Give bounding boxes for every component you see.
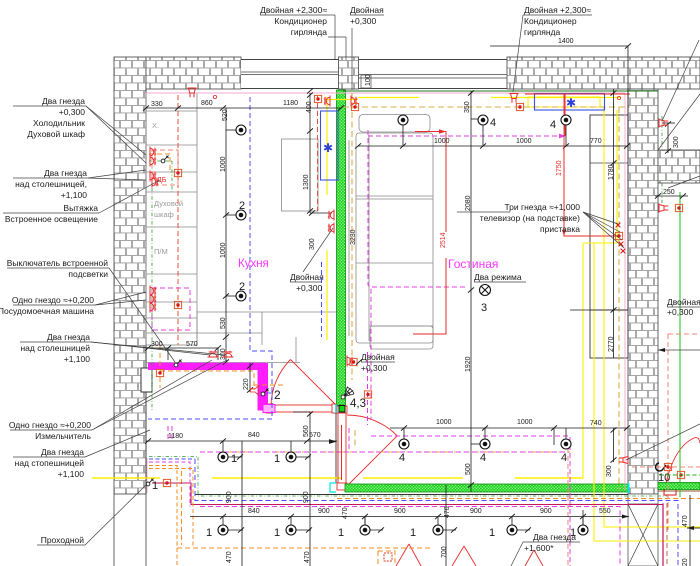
svg-text:500: 500 [465, 463, 472, 475]
svg-text:Кондиционер: Кондиционер [274, 16, 327, 26]
svg-text:560: 560 [303, 425, 310, 437]
svg-text:3230: 3230 [350, 229, 357, 245]
svg-text:770: 770 [590, 138, 602, 145]
svg-text:10: 10 [658, 472, 670, 484]
svg-text:300: 300 [309, 238, 316, 250]
svg-text:Двойная +2,300≈: Двойная +2,300≈ [260, 5, 327, 15]
svg-text:Двойная +2,300≈: Двойная +2,300≈ [524, 5, 591, 15]
svg-text:900: 900 [394, 508, 406, 515]
svg-text:220: 220 [243, 378, 250, 390]
svg-text:470: 470 [304, 551, 311, 563]
svg-text:330: 330 [151, 101, 163, 108]
svg-text:900: 900 [303, 491, 310, 503]
svg-text:550: 550 [599, 508, 611, 515]
svg-text:подсветки: подсветки [68, 269, 108, 279]
svg-text:над столешницей: над столешницей [20, 343, 90, 353]
svg-text:1000: 1000 [220, 156, 227, 172]
svg-text:Двойная: Двойная [361, 352, 395, 362]
svg-text:1400: 1400 [558, 38, 574, 45]
svg-text:1: 1 [206, 527, 212, 539]
svg-text:над стопешницей: над стопешницей [15, 458, 85, 468]
svg-text:над столешницей,: над столешницей, [15, 179, 87, 189]
svg-text:570: 570 [309, 432, 321, 439]
svg-text:Два гнезда: Два гнезда [42, 96, 85, 106]
svg-text:1180: 1180 [283, 100, 298, 107]
svg-text:Вытяжка: Вытяжка [63, 203, 98, 213]
svg-text:1: 1 [231, 453, 237, 465]
svg-text:Посудомоечная машина: Посудомоечная машина [0, 306, 94, 316]
svg-text:900: 900 [540, 508, 552, 515]
svg-text:300: 300 [606, 465, 613, 477]
svg-text:Два гнезда: Два гнезда [47, 332, 90, 342]
svg-text:Встроенное освещение: Встроенное освещение [5, 214, 98, 224]
svg-text:Двойная: Двойная [667, 297, 700, 307]
svg-text:шкаф: шкаф [154, 210, 174, 219]
svg-text:Гостиная: Гостиная [448, 257, 498, 271]
svg-text:Одно гнездо ≈+0,200: Одно гнездо ≈+0,200 [12, 295, 94, 305]
svg-text:350: 350 [464, 101, 471, 113]
svg-text:+1,600*: +1,600* [524, 543, 554, 553]
svg-text:Проходной: Проходной [41, 535, 85, 545]
svg-text:100: 100 [365, 74, 372, 86]
svg-text:1: 1 [274, 527, 280, 539]
svg-text:гирлянда: гирлянда [524, 27, 561, 37]
svg-text:1750: 1750 [556, 160, 563, 176]
svg-text:1: 1 [410, 527, 416, 539]
svg-text:Два гнезда: Два гнезда [41, 447, 84, 457]
svg-text:телевизор (на подставке): телевизор (на подставке) [480, 213, 580, 223]
svg-text:Три гнезда ≈+1,000: Три гнезда ≈+1,000 [504, 202, 580, 212]
svg-text:1: 1 [274, 453, 280, 465]
svg-text:530: 530 [220, 317, 227, 329]
svg-text:900: 900 [226, 491, 233, 503]
svg-text:3: 3 [481, 302, 487, 314]
svg-text:520: 520 [222, 109, 229, 121]
svg-text:+1,100: +1,100 [58, 469, 85, 479]
svg-text:гирлянда: гирлянда [291, 27, 328, 37]
svg-text:860: 860 [201, 100, 213, 107]
svg-text:1000: 1000 [220, 242, 227, 258]
svg-text:740: 740 [590, 420, 602, 427]
svg-text:1780: 1780 [608, 164, 615, 180]
svg-text:1000: 1000 [434, 138, 450, 145]
svg-text:Кондиционер: Кондиционер [524, 16, 577, 26]
svg-text:Двойная: Двойная [290, 272, 324, 282]
svg-text:Двойная: Двойная [350, 5, 384, 15]
svg-text:1300: 1300 [303, 174, 310, 190]
svg-text:2770: 2770 [608, 336, 615, 352]
svg-text:Измельчитель: Измельчитель [35, 431, 91, 441]
svg-text:720: 720 [682, 558, 689, 566]
svg-text:+0,300: +0,300 [296, 283, 323, 293]
svg-text:+0,300: +0,300 [667, 307, 694, 317]
svg-text:1: 1 [338, 527, 344, 539]
svg-text:2: 2 [274, 388, 281, 402]
svg-text:2080: 2080 [465, 195, 472, 211]
svg-text:1: 1 [489, 527, 495, 539]
svg-text:X.: X. [152, 121, 159, 130]
svg-text:4: 4 [490, 117, 496, 129]
svg-text:840: 840 [248, 432, 260, 439]
svg-text:+1,100: +1,100 [61, 190, 88, 200]
svg-text:4: 4 [561, 452, 567, 464]
svg-text:2: 2 [239, 281, 245, 293]
svg-text:+1,100: +1,100 [64, 354, 91, 364]
svg-text:2: 2 [239, 200, 245, 212]
svg-text:Одно гнездо ≈+0,200: Одно гнездо ≈+0,200 [9, 420, 91, 430]
svg-text:Два гнезда: Два гнезда [533, 532, 576, 542]
svg-text:4: 4 [399, 452, 405, 464]
svg-text:470: 470 [226, 551, 233, 563]
svg-text:1: 1 [152, 480, 158, 492]
svg-text:470: 470 [342, 507, 349, 519]
svg-text:Кухня: Кухня [238, 258, 269, 270]
svg-text:900: 900 [318, 508, 330, 515]
svg-text:1000: 1000 [436, 419, 452, 426]
svg-text:2514: 2514 [440, 232, 447, 248]
svg-text:300: 300 [673, 136, 680, 148]
svg-text:+0,300: +0,300 [361, 363, 388, 373]
svg-text:Духовой: Духовой [154, 199, 183, 208]
svg-text:приставка: приставка [540, 224, 580, 234]
svg-text:Два гнезда: Два гнезда [44, 168, 87, 178]
svg-text:400: 400 [306, 101, 313, 113]
svg-text:1000: 1000 [517, 419, 533, 426]
svg-text:700: 700 [441, 546, 448, 558]
svg-text:+0,300: +0,300 [59, 107, 86, 117]
svg-text:4,3: 4,3 [350, 398, 366, 410]
svg-text:Два режима: Два режима [474, 272, 522, 282]
svg-text:570: 570 [186, 341, 198, 348]
svg-text:470: 470 [444, 506, 451, 518]
svg-text:4: 4 [480, 452, 486, 464]
svg-text:1920: 1920 [465, 356, 472, 372]
svg-text:✱: ✱ [323, 141, 333, 155]
svg-text:✱: ✱ [566, 96, 576, 110]
svg-text:Выключатель встроенной: Выключатель встроенной [7, 258, 109, 268]
svg-text:1000: 1000 [516, 138, 532, 145]
svg-text:250: 250 [663, 189, 675, 196]
svg-text:Холодильник: Холодильник [33, 118, 85, 128]
svg-text:900: 900 [470, 508, 482, 515]
svg-text:П/М: П/М [154, 247, 168, 256]
svg-text:4: 4 [550, 119, 556, 131]
svg-text:Духовой шкаф: Духовой шкаф [27, 129, 85, 139]
svg-text:840: 840 [248, 508, 260, 515]
svg-text:470: 470 [682, 515, 689, 527]
svg-text:1180: 1180 [168, 433, 183, 440]
svg-text:+0,300: +0,300 [350, 16, 377, 26]
